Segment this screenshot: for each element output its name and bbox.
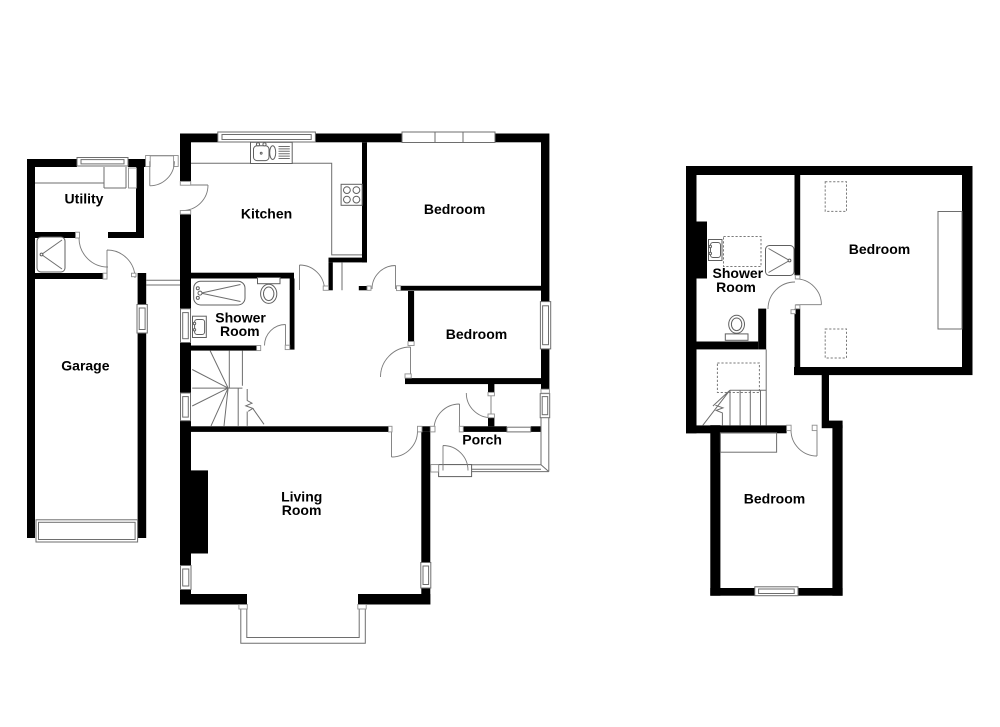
- svg-text:Porch: Porch: [462, 431, 502, 447]
- svg-text:Room: Room: [716, 279, 756, 295]
- svg-text:Room: Room: [220, 323, 260, 339]
- svg-text:Room: Room: [282, 502, 322, 518]
- svg-text:Bedroom: Bedroom: [424, 201, 485, 217]
- svg-text:Bedroom: Bedroom: [744, 491, 805, 507]
- svg-text:Utility: Utility: [65, 191, 104, 207]
- svg-text:Bedroom: Bedroom: [849, 241, 910, 257]
- svg-text:Garage: Garage: [61, 357, 109, 373]
- svg-text:Bedroom: Bedroom: [446, 326, 507, 342]
- svg-text:Kitchen: Kitchen: [241, 205, 292, 221]
